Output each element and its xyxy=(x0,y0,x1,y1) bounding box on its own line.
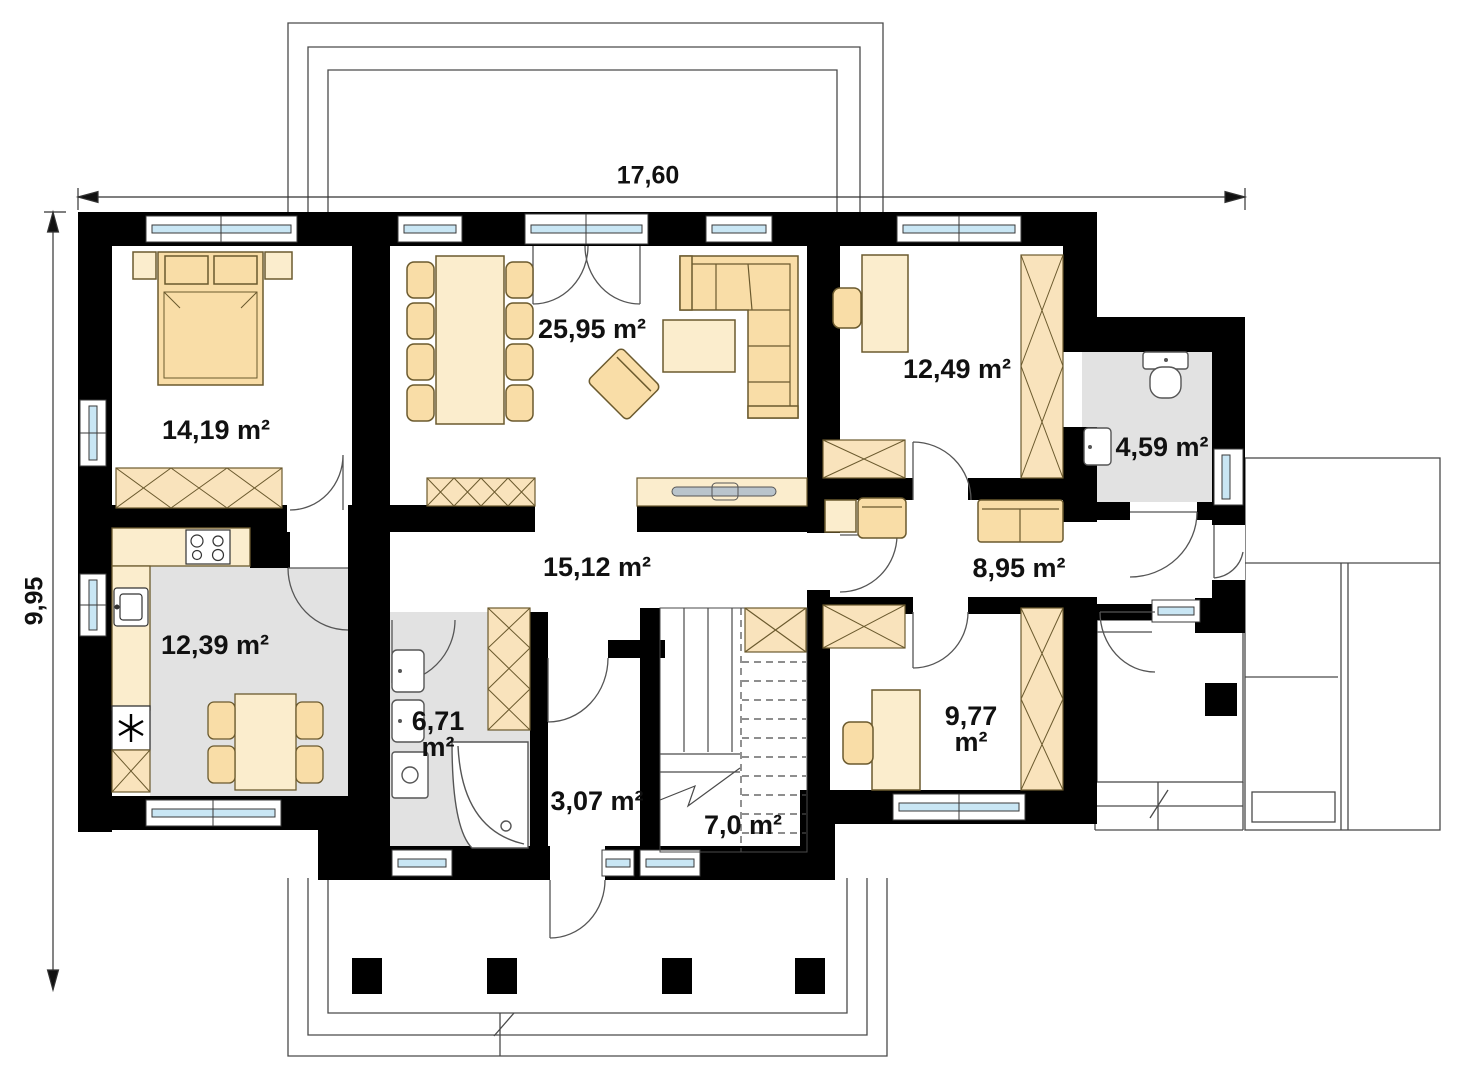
armchair-corridor xyxy=(858,498,906,538)
armchair xyxy=(587,347,661,421)
window-entry-sidelight xyxy=(602,850,634,876)
stove xyxy=(186,530,230,564)
nightstand xyxy=(133,252,156,279)
window-living-top xyxy=(706,216,772,242)
chair xyxy=(506,262,533,298)
chair xyxy=(208,702,235,739)
floor-plan-page: 14,19 m² 25,95 m² 12,49 m² 4,59 m² 15,12… xyxy=(0,0,1465,1080)
kitchen-cabinet-x xyxy=(112,750,150,792)
living-furniture xyxy=(407,256,807,506)
dimension-width-label: 17,60 xyxy=(617,162,680,191)
balcony-door xyxy=(525,214,648,304)
room-label-living: 25,95 m² xyxy=(537,316,647,342)
room-furniture xyxy=(823,605,1063,790)
sofa-corridor xyxy=(978,500,1063,542)
wc-sink xyxy=(1084,428,1111,465)
tv xyxy=(672,487,776,496)
window-dining-top xyxy=(398,216,462,242)
corridor-furniture xyxy=(825,498,1063,542)
dimension-height-label: 9,95 xyxy=(21,577,50,626)
window-bathroom-bottom xyxy=(392,850,452,876)
window-kitchen-bottom xyxy=(146,800,281,826)
room-label-kitchen: 12,39 m² xyxy=(161,632,269,658)
chair xyxy=(506,385,533,421)
tv-cabinet xyxy=(637,478,807,506)
office-dresser xyxy=(823,440,905,478)
stairs-wardrobe xyxy=(745,608,806,652)
window-wc-right xyxy=(1214,449,1243,505)
top-terrace-outline xyxy=(288,23,883,218)
chair xyxy=(296,746,323,783)
window-office-top xyxy=(897,216,1021,242)
desk xyxy=(862,255,908,352)
room-dresser xyxy=(823,605,905,648)
chair xyxy=(407,385,434,421)
office-wardrobe xyxy=(1021,255,1063,478)
window-room-bottom xyxy=(893,794,1025,820)
room-label-entry: 3,07 m² xyxy=(550,788,643,814)
room-label-corridor: 8,95 m² xyxy=(972,555,1065,581)
desk-chair xyxy=(833,288,861,328)
room-label-wc: 4,59 m² xyxy=(1115,434,1210,460)
terrace-door-glazed xyxy=(1152,600,1200,622)
bedroom-wardrobe xyxy=(116,468,282,508)
fridge xyxy=(112,706,150,750)
porch-columns xyxy=(352,958,825,994)
side-table xyxy=(825,500,856,532)
window-stairs-bottom xyxy=(640,850,700,876)
kitchen-sink xyxy=(114,588,148,626)
chair xyxy=(506,344,533,380)
nightstand xyxy=(265,252,292,279)
room-wardrobe xyxy=(1021,608,1063,790)
chair xyxy=(506,303,533,339)
window-bedroom-left xyxy=(80,400,106,466)
chair xyxy=(208,746,235,783)
washbasin xyxy=(392,650,424,692)
kitchen-table xyxy=(235,694,296,790)
desk-chair xyxy=(843,722,873,764)
room-label-bedroom: 14,19 m² xyxy=(162,417,270,443)
window-kitchen-left xyxy=(80,574,106,636)
desk xyxy=(872,690,920,790)
chair xyxy=(296,702,323,739)
coffee-table xyxy=(663,320,735,372)
dining-table xyxy=(436,256,504,424)
window-bedroom-top xyxy=(146,216,297,242)
room-label-stairs: 7,0 m² xyxy=(704,812,782,838)
chair xyxy=(407,303,434,339)
hall-sideboard xyxy=(427,478,535,506)
room-label-room: 9,77 m² xyxy=(926,703,1016,755)
bedroom-furniture xyxy=(116,252,292,508)
floor-plan-drawing xyxy=(0,0,1465,1080)
bathroom-cabinet xyxy=(488,608,530,730)
room-label-bathroom: 6,71 m² xyxy=(393,708,483,760)
room-label-office: 12,49 m² xyxy=(902,356,1012,382)
room-label-hall: 15,12 m² xyxy=(543,554,651,580)
chair xyxy=(407,344,434,380)
chair xyxy=(407,262,434,298)
